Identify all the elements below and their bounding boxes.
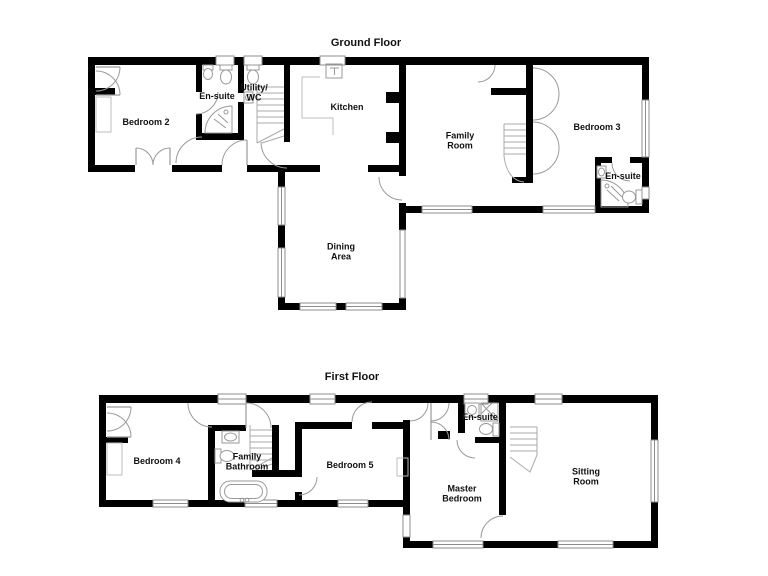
ground-floor-title: Ground Floor: [331, 37, 401, 49]
room-label-ensuite-first: En-suite: [462, 412, 498, 422]
wardrobe-icon: [96, 67, 120, 132]
room-label-sitting-room: Sitting Room: [572, 467, 600, 488]
room-label-bedroom-3: Bedroom 3: [573, 122, 620, 132]
room-label-family-bathroom: Family Bathroom: [226, 452, 269, 473]
ground-floor-plan: [88, 56, 649, 310]
room-label-bedroom-2: Bedroom 2: [122, 117, 169, 127]
staircase-icon-ground-right: [504, 124, 526, 182]
room-label-bedroom-4: Bedroom 4: [133, 456, 180, 466]
room-label-master-bedroom: Master Bedroom: [442, 484, 482, 505]
room-label-kitchen: Kitchen: [330, 102, 363, 112]
first-floor-title: First Floor: [325, 371, 379, 383]
floorplan-drawing: [0, 0, 768, 576]
kitchen-counter: [302, 77, 333, 135]
ground-floor-walls: [88, 57, 649, 310]
sink-icon: [222, 431, 239, 443]
toilet-icon: [623, 190, 643, 204]
floorplan-page: Ground Floor First Floor Bedroom 2 En-su…: [0, 0, 768, 576]
sink-icon: [203, 65, 213, 80]
room-label-dining-area: Dining Area: [327, 242, 355, 263]
room-label-family-room: Family Room: [446, 131, 475, 152]
room-label-bedroom3-ensuite: En-suite: [605, 171, 641, 181]
ground-floor-fixtures: [96, 64, 642, 207]
kitchen-sink-icon: [326, 64, 342, 78]
room-label-utility-wc: Utility/ WC: [240, 83, 268, 104]
toilet-icon: [220, 65, 232, 84]
first-floor-fixtures: [107, 403, 499, 502]
toilet-icon: [480, 423, 500, 436]
room-label-bedroom-5: Bedroom 5: [326, 460, 373, 470]
staircase-icon-first-right: [510, 427, 537, 472]
room-label-ensuite-ground: En-suite: [199, 91, 235, 101]
toilet-icon: [247, 65, 259, 84]
bathtub-icon: [220, 481, 267, 502]
